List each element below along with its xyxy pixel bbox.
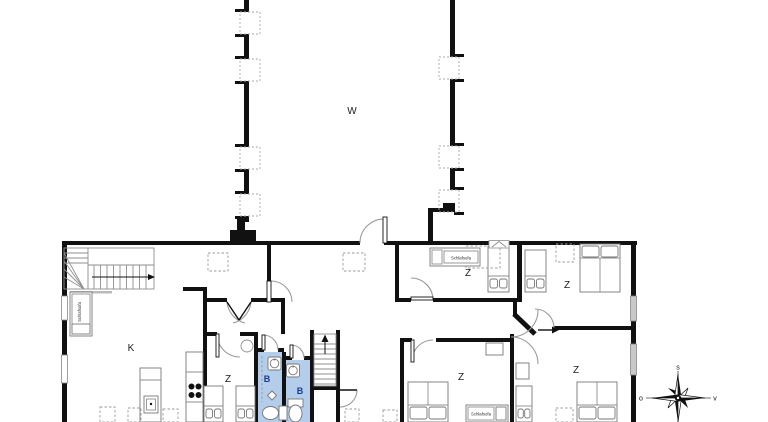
- door-bedroom-small: [216, 334, 253, 357]
- chair-kitchen-3: [163, 409, 178, 422]
- staircase-mid: [314, 334, 336, 386]
- wardrobe-bottom-right: [556, 408, 573, 422]
- radiator-bottom-right: [516, 363, 529, 379]
- floor-plan-drawing: Schlafsofa Schlafsofa Schlafsofa: [0, 0, 768, 422]
- sleepsofa-kitchen-label: Schlafsofa: [77, 301, 82, 322]
- kitchen-counter: [186, 352, 203, 422]
- window-left-2: [62, 355, 68, 383]
- bench-bottom-center: [486, 343, 503, 355]
- double-bed-top-right: [580, 244, 620, 292]
- room-label-k: K: [128, 343, 135, 354]
- kitchen-island: [140, 368, 161, 422]
- window-left-1: [62, 296, 68, 320]
- sleepsofa-bottom-center-label: Schlafsofa: [471, 412, 492, 417]
- door-bedroom-top-right: [535, 309, 559, 334]
- floor-plan-page: Schlafsofa Schlafsofa Schlafsofa: [0, 0, 768, 422]
- room-label-b-left: B: [264, 374, 271, 384]
- door-bathroom-right: [290, 345, 304, 358]
- hall-w-walls: [230, 0, 464, 245]
- compass-letter-left: o: [639, 396, 643, 403]
- door-hall-w: [360, 217, 387, 243]
- hall-w-left-window-caps: [235, 9, 245, 219]
- toilet-right: [288, 399, 303, 422]
- wardrobe-top-right: [556, 244, 574, 262]
- chair-corridor-1: [345, 409, 359, 422]
- room-label-z-top-middle: Z: [465, 268, 471, 279]
- door-bathroom-left: [262, 335, 278, 350]
- compass-letter-right: v: [713, 396, 717, 403]
- bed-top-middle: [488, 246, 509, 292]
- sleepsofa-top-middle-label: Schlafsofa: [451, 256, 472, 261]
- bed-top-right-single: [525, 250, 546, 292]
- room-label-z-bottom-center: Z: [458, 372, 464, 383]
- wardrobe-hallway-2: [343, 253, 365, 271]
- hall-w-left-windows: [240, 12, 260, 216]
- bed-bottom-right-single: [516, 386, 532, 422]
- double-door-hallway: [227, 302, 251, 323]
- room-label-w: W: [347, 106, 357, 117]
- window-right-2: [631, 344, 637, 375]
- room-label-z-small: Z: [225, 374, 231, 385]
- sink-right: [287, 364, 300, 377]
- room-label-z-bottom-right: Z: [573, 365, 579, 376]
- door-corridor-south: [340, 390, 357, 407]
- compass-rose: s o v: [639, 365, 717, 422]
- staircase-main: [64, 248, 155, 294]
- toilet-left: [263, 406, 288, 420]
- sleepsofa-bottom-center: Schlafsofa: [466, 405, 508, 422]
- wardrobe-hallway-1: [208, 253, 228, 271]
- bed-small-z-1: [204, 386, 223, 422]
- room-label-z-top-right: Z: [564, 280, 570, 291]
- window-right-1: [631, 296, 637, 321]
- chair-kitchen-2: [128, 408, 141, 422]
- double-bed-bottom-center: [408, 382, 448, 422]
- double-bed-bottom-right: [577, 382, 617, 422]
- sink-left: [268, 357, 281, 370]
- bed-small-z-2: [236, 386, 255, 422]
- stair-up-arrow: [322, 335, 329, 343]
- diagonal-wall: [514, 314, 535, 334]
- door-bedroom-bottom-center: [411, 340, 433, 362]
- room-label-b-right: B: [297, 386, 304, 396]
- door-bedroom-top-middle: [411, 278, 433, 300]
- chair-kitchen-1: [100, 407, 115, 422]
- lamp-circle: [241, 340, 253, 352]
- compass-letter-top: s: [676, 365, 680, 372]
- chair-corridor-2: [383, 410, 397, 422]
- sleepsofa-kitchen: Schlafsofa: [70, 292, 92, 336]
- kitchen-fixtures: [140, 352, 203, 422]
- window-niche-symbol: [489, 241, 509, 249]
